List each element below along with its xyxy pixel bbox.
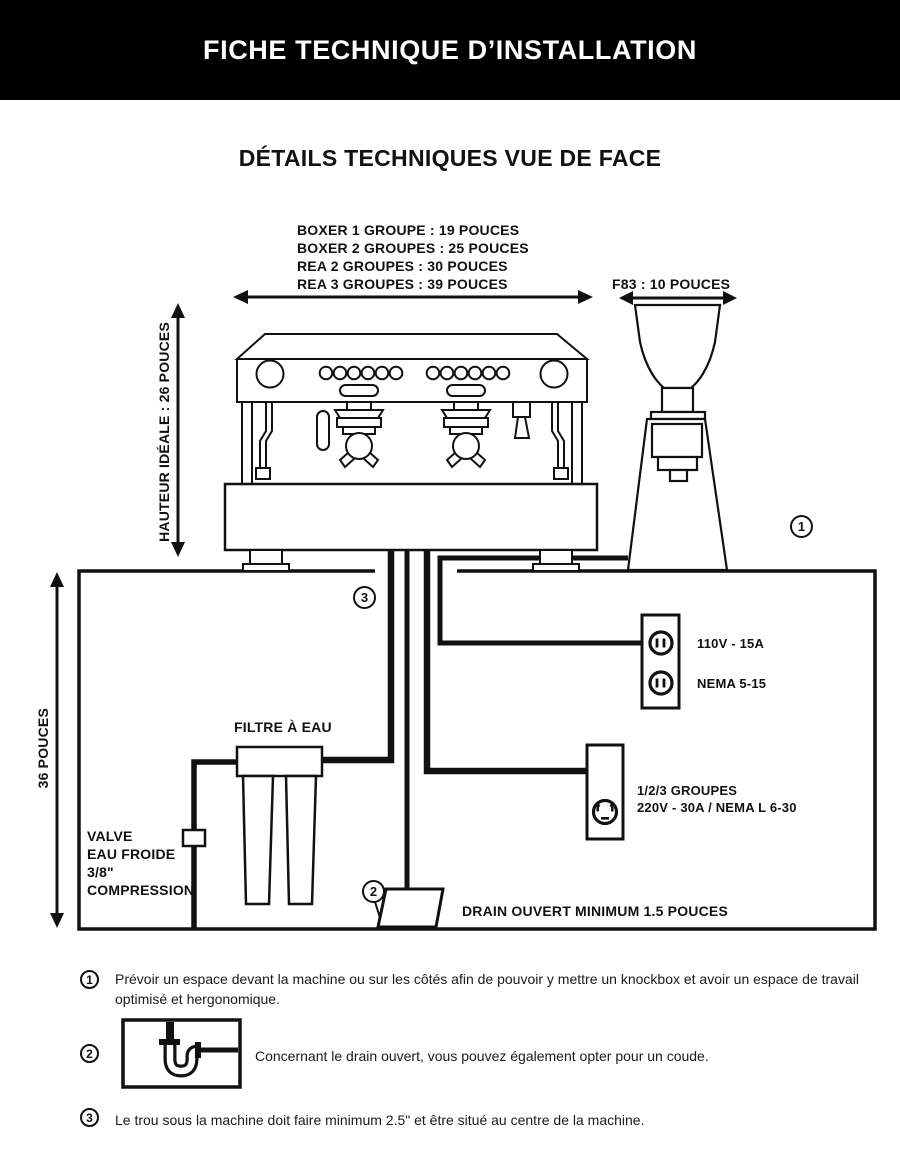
callout-1-badge: 1 <box>790 515 813 538</box>
note-3-text: Le trou sous la machine doit faire minim… <box>115 1110 644 1130</box>
grinder-hopper <box>635 305 720 388</box>
machine-width-labels: BOXER 1 GROUPE : 19 POUCES BOXER 2 GROUP… <box>297 221 529 293</box>
note-3-badge: 3 <box>80 1108 99 1127</box>
grinder-doser <box>652 424 702 457</box>
water-supply-pipe <box>322 550 391 760</box>
counter-height-arrow <box>50 572 64 928</box>
outlet-220v-groups-label: 1/2/3 GROUPES <box>637 783 737 798</box>
outlet-110v-spec-label: 110V - 15A <box>697 636 764 651</box>
note-1-text: Prévoir un espace devant la machine ou s… <box>115 969 880 1009</box>
cup-rail <box>317 411 329 450</box>
steam-wand <box>513 402 530 438</box>
valve-label: VALVE EAU FROIDE 3/8" COMPRESSION <box>87 827 194 899</box>
grinder-width-label: F83 : 10 POUCES <box>612 276 730 292</box>
ideal-height-arrow <box>171 303 185 557</box>
outlet-110v-drawing <box>642 615 679 708</box>
counter-outline <box>79 571 875 929</box>
espresso-machine-drawing <box>225 334 597 571</box>
spec-sheet-page: FICHE TECHNIQUE D’INSTALLATION DÉTAILS T… <box>0 0 900 1164</box>
water-filter-label: FILTRE À EAU <box>234 719 332 735</box>
width-label-rea3: REA 3 GROUPES : 39 POUCES <box>297 275 529 293</box>
width-label-boxer1: BOXER 1 GROUPE : 19 POUCES <box>297 221 529 239</box>
note-1-badge: 1 <box>80 970 99 989</box>
machine-base <box>225 484 597 550</box>
group-head <box>442 402 490 467</box>
note-2-badge: 2 <box>80 1044 99 1063</box>
counter-height-label: 36 POUCES <box>35 708 51 788</box>
note-2-text: Concernant le drain ouvert, vous pouvez … <box>255 1046 709 1066</box>
p-trap-drawing <box>123 1020 240 1087</box>
machine-power-cord <box>427 550 587 771</box>
callout-3-badge: 3 <box>353 586 376 609</box>
water-filter-drawing <box>237 747 322 904</box>
drain-label: DRAIN OUVERT MINIMUM 1.5 POUCES <box>462 903 728 919</box>
drain-funnel-drawing <box>375 889 443 927</box>
ideal-height-label: HAUTEUR IDÉALE : 26 POUCES <box>156 322 172 542</box>
outlet-110v-nema-label: NEMA 5-15 <box>697 676 766 691</box>
outlet-220v-spec-label: 220V - 30A / NEMA L 6-30 <box>637 800 797 815</box>
callout-2-badge: 2 <box>362 880 385 903</box>
grinder-width-arrow <box>619 291 737 305</box>
group-head <box>335 402 383 467</box>
width-label-boxer2: BOXER 2 GROUPES : 25 POUCES <box>297 239 529 257</box>
outlet-220v-drawing <box>587 745 623 839</box>
width-label-rea2: REA 2 GROUPES : 30 POUCES <box>297 257 529 275</box>
grinder-drawing <box>628 305 727 570</box>
